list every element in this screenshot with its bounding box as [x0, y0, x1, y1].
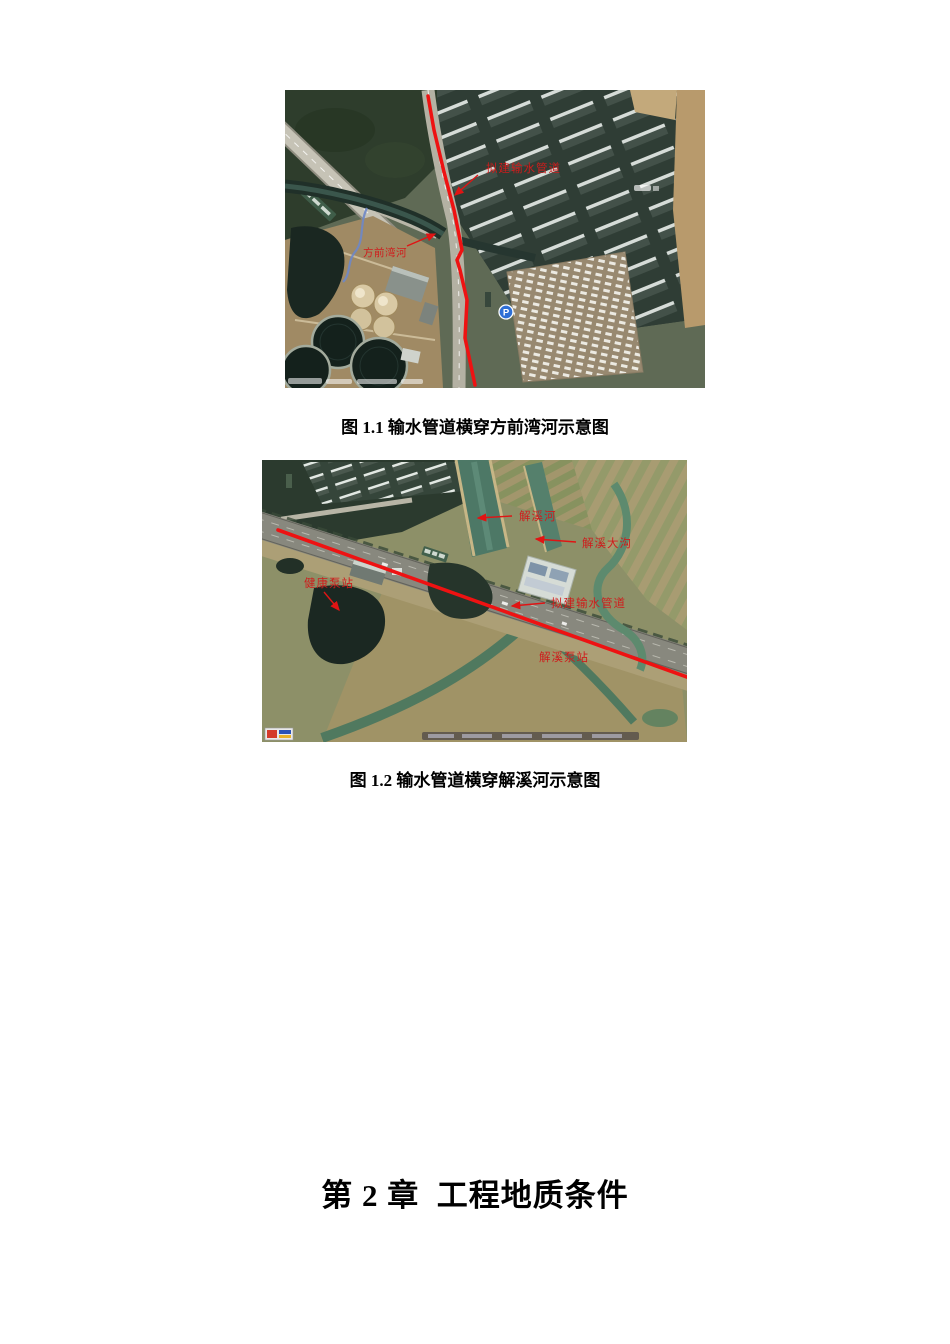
dome-tank-highlight — [355, 288, 365, 298]
parking-lot — [507, 252, 643, 382]
map-logo — [265, 728, 293, 740]
chapter-heading: 第 2 章 工程地质条件 — [0, 1170, 950, 1215]
tree-cluster — [365, 142, 425, 178]
dome-tank — [373, 316, 395, 338]
small-pond — [276, 558, 304, 574]
figure-1-satellite-image: P 拟建输水管道 方前湾河 — [285, 90, 705, 388]
figure-1-canvas: P 拟建输水管道 方前湾河 — [285, 90, 705, 388]
road-sign-plate — [485, 292, 491, 307]
river-label: 解溪河 — [519, 509, 557, 523]
river-label: 方前湾河 — [363, 246, 407, 259]
jiexi-pump-label: 解溪泵站 — [539, 650, 589, 664]
pipeline-label: 拟建输水管道 — [551, 596, 626, 610]
map-place-label — [634, 185, 651, 191]
road-sign-plate — [286, 474, 292, 488]
ditch-label: 解溪大沟 — [582, 536, 632, 550]
parking-icon-letter: P — [503, 308, 510, 319]
map-watermark — [422, 732, 639, 740]
pond — [642, 709, 678, 727]
figure-2-caption: 图 1.2 输水管道横穿解溪河示意图 — [0, 766, 950, 791]
dome-tank-highlight — [378, 296, 388, 306]
health-pump-label: 健康泵站 — [304, 576, 354, 590]
pipeline-label: 拟建输水管道 — [486, 161, 561, 175]
figure-1-caption: 图 1.1 输水管道横穿方前湾河示意图 — [0, 413, 950, 438]
map-place-label — [653, 186, 659, 191]
figure-2-canvas: 解溪河 解溪大沟 健康泵站 拟建输水管道 解溪泵站 — [262, 460, 687, 742]
figure-2-satellite-image: 解溪河 解溪大沟 健康泵站 拟建输水管道 解溪泵站 — [262, 460, 687, 742]
